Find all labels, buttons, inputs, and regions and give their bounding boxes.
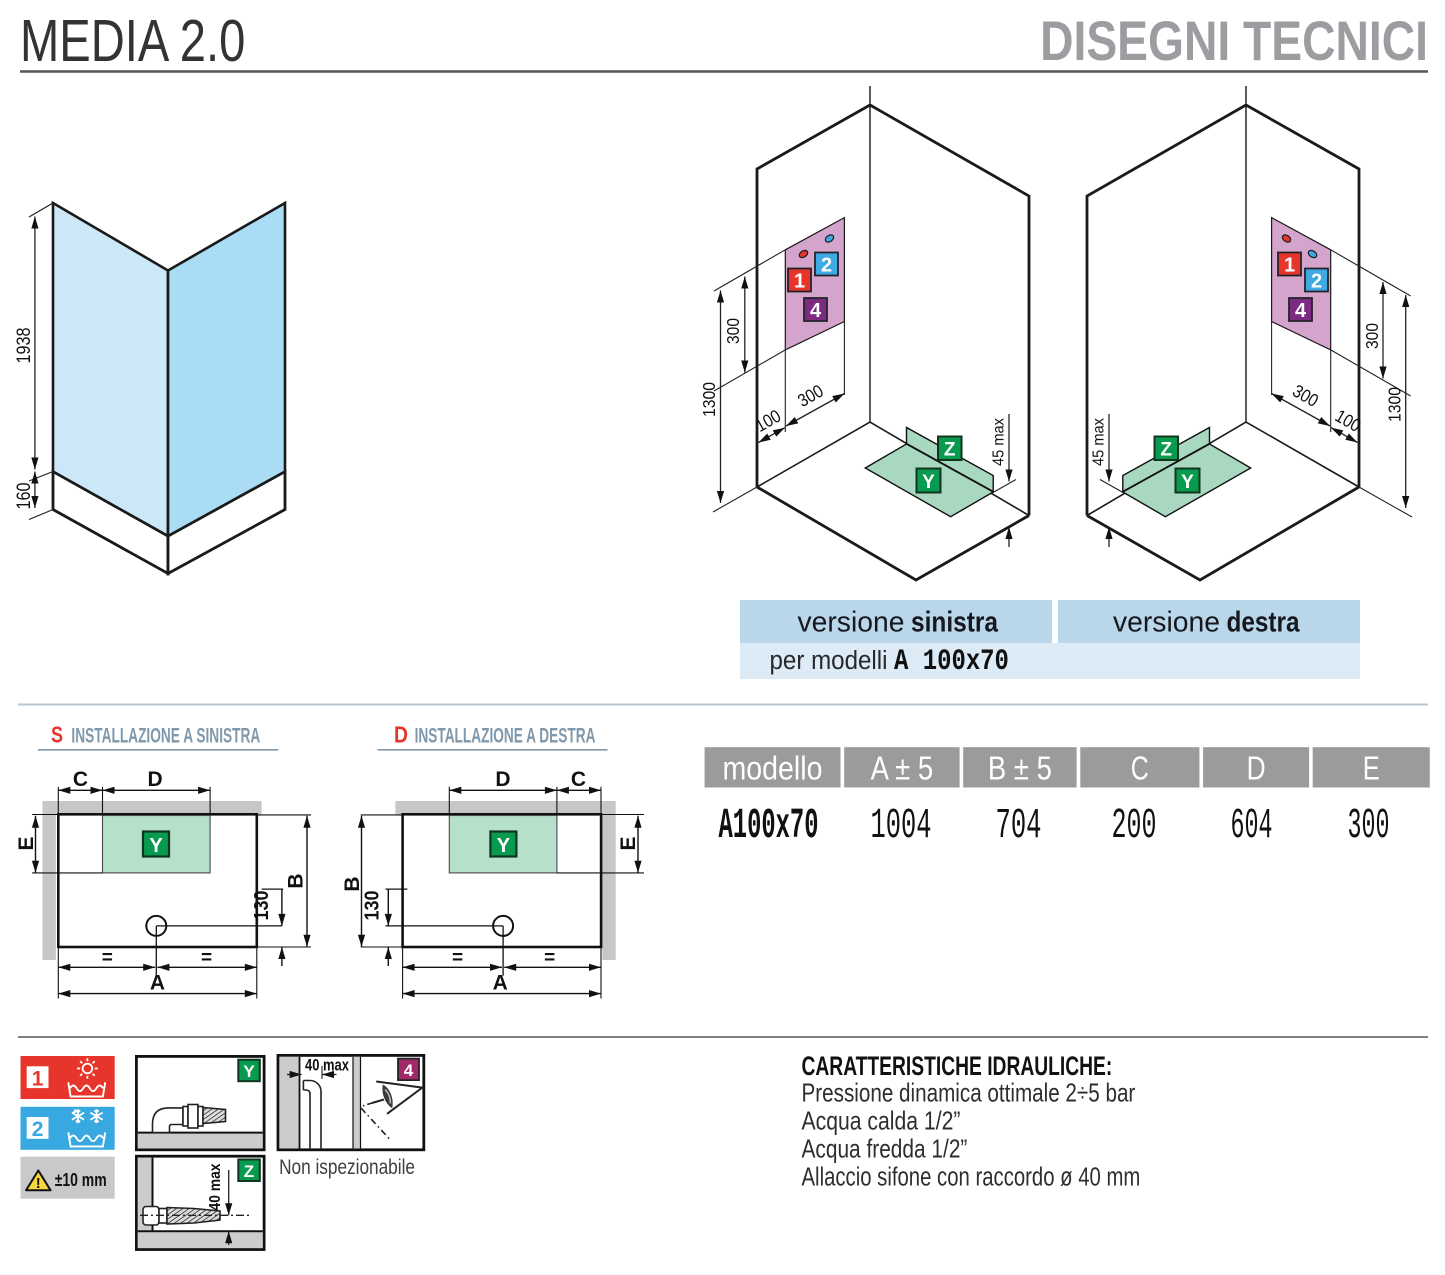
svg-text:Y: Y bbox=[243, 1062, 255, 1081]
svg-text:A: A bbox=[493, 972, 508, 995]
svg-text:±10 mm: ±10 mm bbox=[55, 1170, 107, 1190]
svg-text:Y: Y bbox=[1181, 472, 1194, 493]
svg-text:Z: Z bbox=[1160, 440, 1172, 461]
svg-text:A100x70: A100x70 bbox=[719, 802, 819, 850]
svg-text:1004: 1004 bbox=[871, 802, 932, 851]
svg-text:D: D bbox=[1247, 751, 1266, 787]
svg-text:Pressione dinamica ottimale 2÷: Pressione dinamica ottimale 2÷5 bar bbox=[802, 1078, 1136, 1107]
svg-text:2: 2 bbox=[1311, 271, 1322, 293]
svg-text:per modelli: per modelli bbox=[770, 646, 888, 675]
svg-text:C: C bbox=[571, 768, 586, 791]
svg-text:modello: modello bbox=[723, 750, 823, 787]
svg-text:Y: Y bbox=[149, 835, 163, 857]
svg-text:300: 300 bbox=[1362, 323, 1382, 349]
svg-text:300: 300 bbox=[723, 318, 743, 344]
svg-text:B ± 5: B ± 5 bbox=[988, 751, 1052, 787]
svg-text:130: 130 bbox=[362, 891, 384, 921]
svg-text:B: B bbox=[285, 873, 308, 888]
svg-text:1938: 1938 bbox=[13, 327, 35, 363]
svg-text:D: D bbox=[148, 768, 163, 791]
svg-text:=: = bbox=[544, 948, 555, 969]
svg-text:1: 1 bbox=[794, 271, 805, 293]
svg-text:4: 4 bbox=[1295, 300, 1307, 322]
svg-text:S: S bbox=[51, 722, 63, 748]
svg-text:Z: Z bbox=[244, 1162, 254, 1181]
svg-text:4: 4 bbox=[810, 300, 822, 322]
svg-text:200: 200 bbox=[1112, 802, 1157, 851]
svg-text:destra: destra bbox=[1227, 605, 1301, 638]
svg-text:Allaccio sifone con raccordo ø: Allaccio sifone con raccordo ø 40 mm bbox=[802, 1162, 1141, 1191]
svg-text:Z: Z bbox=[944, 440, 956, 461]
svg-text:E: E bbox=[1363, 750, 1380, 787]
svg-text:!: ! bbox=[36, 1175, 41, 1192]
svg-text:D: D bbox=[495, 768, 510, 791]
svg-text:Non ispezionabile: Non ispezionabile bbox=[279, 1157, 415, 1180]
svg-text:300: 300 bbox=[1348, 802, 1390, 850]
svg-text:1: 1 bbox=[32, 1068, 44, 1091]
svg-text:E: E bbox=[15, 836, 38, 850]
svg-text:4: 4 bbox=[404, 1061, 414, 1080]
svg-text:CARATTERISTICHE IDRAULICHE:: CARATTERISTICHE IDRAULICHE: bbox=[802, 1051, 1113, 1081]
svg-text:1300: 1300 bbox=[699, 382, 719, 417]
svg-text:Acqua calda 1/2”: Acqua calda 1/2” bbox=[802, 1108, 961, 1137]
svg-text:E: E bbox=[617, 836, 640, 850]
svg-text:MEDIA 2.0: MEDIA 2.0 bbox=[20, 9, 245, 74]
svg-text:160: 160 bbox=[13, 482, 35, 509]
svg-text:A ± 5: A ± 5 bbox=[871, 751, 933, 787]
svg-text:2: 2 bbox=[821, 255, 832, 277]
svg-text:=: = bbox=[201, 948, 212, 969]
svg-text:A 100x70: A 100x70 bbox=[894, 645, 1009, 679]
svg-text:INSTALLAZIONE A SINISTRA: INSTALLAZIONE A SINISTRA bbox=[71, 723, 260, 747]
svg-text:2: 2 bbox=[32, 1118, 44, 1141]
svg-text:40 max: 40 max bbox=[305, 1057, 350, 1075]
svg-text:versione: versione bbox=[1113, 606, 1220, 638]
svg-text:1300: 1300 bbox=[1385, 387, 1405, 422]
svg-text:704: 704 bbox=[996, 802, 1042, 851]
svg-text:DISEGNI TECNICI: DISEGNI TECNICI bbox=[1040, 10, 1428, 72]
svg-text:Y: Y bbox=[497, 835, 511, 857]
svg-text:C: C bbox=[73, 768, 88, 791]
svg-text:=: = bbox=[102, 948, 113, 969]
svg-text:sinistra: sinistra bbox=[911, 606, 999, 638]
svg-text:45 max: 45 max bbox=[1090, 418, 1107, 466]
svg-text:versione: versione bbox=[798, 606, 905, 638]
svg-text:Acqua fredda 1/2”: Acqua fredda 1/2” bbox=[802, 1134, 968, 1163]
svg-text:604: 604 bbox=[1231, 802, 1273, 850]
svg-text:D: D bbox=[394, 722, 408, 748]
svg-text:1: 1 bbox=[1284, 255, 1295, 277]
svg-text:40 max: 40 max bbox=[207, 1163, 224, 1211]
svg-text:A: A bbox=[150, 972, 165, 995]
svg-text:Y: Y bbox=[922, 472, 935, 493]
svg-text:=: = bbox=[452, 948, 463, 969]
svg-text:INSTALLAZIONE A DESTRA: INSTALLAZIONE A DESTRA bbox=[415, 723, 596, 747]
svg-text:C: C bbox=[1131, 751, 1149, 787]
svg-text:45 max: 45 max bbox=[990, 418, 1007, 466]
svg-text:B: B bbox=[341, 876, 364, 891]
svg-text:130: 130 bbox=[251, 891, 273, 921]
